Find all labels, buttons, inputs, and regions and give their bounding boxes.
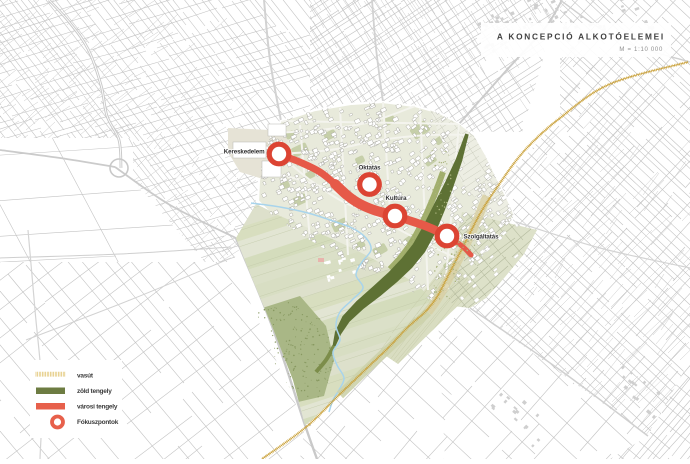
svg-text:Szolgáltatás: Szolgáltatás <box>464 234 500 241</box>
svg-text:városi tengely: városi tengely <box>77 404 118 411</box>
svg-text:A KONCEPCIÓ ALKOTÓELEMEI: A KONCEPCIÓ ALKOTÓELEMEI <box>497 31 665 42</box>
svg-text:vasút: vasút <box>77 373 94 380</box>
svg-text:M = 1:10 000: M = 1:10 000 <box>619 47 663 53</box>
svg-text:Kultúra: Kultúra <box>386 195 408 202</box>
svg-text:zöld tengely: zöld tengely <box>77 388 112 395</box>
svg-text:Fókuszpontok: Fókuszpontok <box>77 419 119 426</box>
svg-text:Kereskedelem: Kereskedelem <box>224 149 265 156</box>
svg-text:Oktatás: Oktatás <box>359 165 382 172</box>
